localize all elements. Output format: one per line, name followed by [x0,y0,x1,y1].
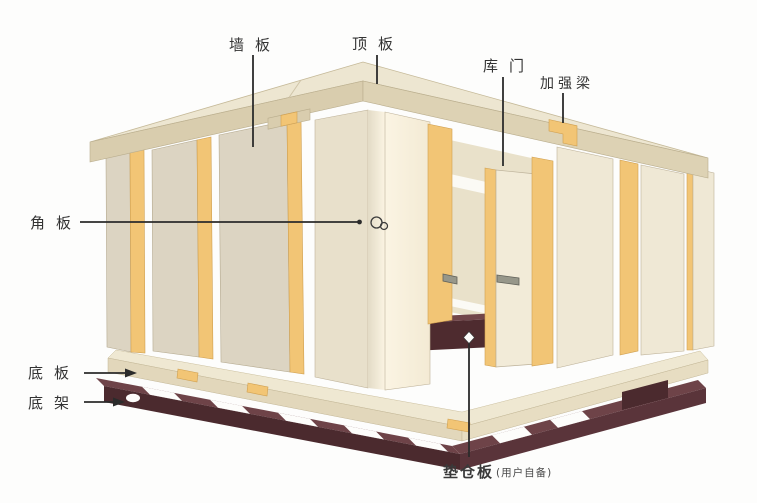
label-door: 库门 [483,57,535,75]
label-top-panel: 顶板 [352,35,404,53]
door-jamb-panel [428,124,452,324]
wall-panel [152,140,199,357]
panel-edge-strip [287,118,304,374]
panel-edge-strip [130,149,145,353]
wall-panel [557,147,613,368]
panel-edge-strip [197,137,213,359]
label-corner-panel: 角板 [30,214,82,232]
label-pallet-board-note: (用户自备) [496,466,552,479]
diagram-canvas: 墙板 顶板 库门 加强梁 角板 底板 底架 垫仓板 (用户自备) [0,0,757,503]
wall-panel [106,152,131,352]
base-frame-hole [126,394,140,402]
label-bottom-frame: 底架 [28,394,80,412]
corner-panel-curve [368,110,385,390]
label-reinforcement-beam: 加强梁 [540,76,594,92]
cold-room-assembly-diagram: 墙板 顶板 库门 加强梁 角板 底板 底架 垫仓板 (用户自备) [0,0,757,503]
panel-edge-strip [532,157,553,366]
panel-edge-strip [620,160,638,355]
door-panel-edge [485,168,496,367]
corner-panel [315,110,430,390]
leader-corner-dot [357,220,362,225]
door-panel [496,170,536,367]
left-wall [106,118,304,374]
wall-panel [219,121,290,372]
corner-panel-left-face [315,110,368,388]
label-pallet-board: 垫仓板 [443,463,494,481]
wall-panel-offset [693,168,714,350]
corner-panel-right-face [385,112,430,390]
wall-panel [641,165,684,355]
label-bottom-panel: 底板 [28,364,80,382]
panel-edge-strip [687,167,693,350]
label-wall-panel: 墙板 [229,36,281,54]
